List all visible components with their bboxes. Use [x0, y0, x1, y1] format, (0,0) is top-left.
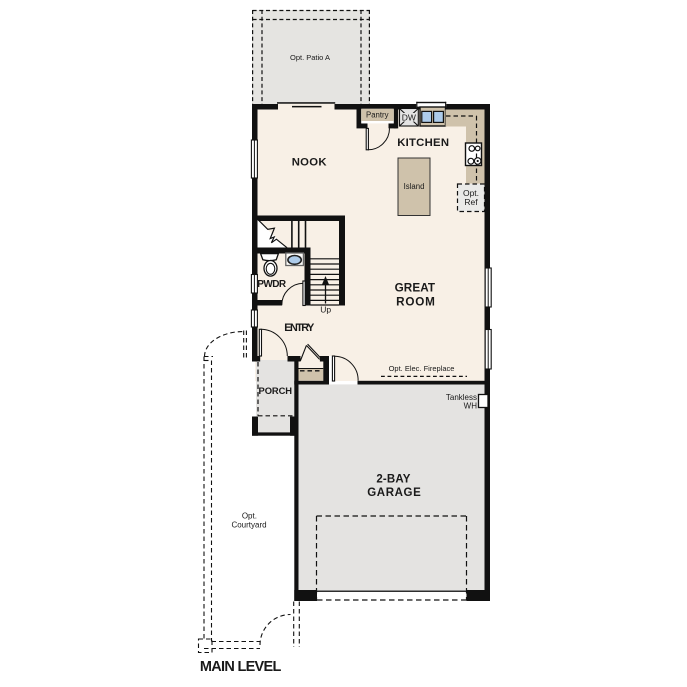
svg-text:NOOK: NOOK	[292, 157, 328, 169]
svg-text:PWDR: PWDR	[257, 279, 287, 290]
svg-text:Island: Island	[404, 182, 425, 191]
svg-text:PORCH: PORCH	[259, 385, 293, 396]
svg-text:KITCHEN: KITCHEN	[397, 137, 449, 149]
svg-text:Opt. Elec. Fireplace: Opt. Elec. Fireplace	[389, 364, 455, 373]
svg-text:Ref: Ref	[464, 197, 478, 207]
svg-text:Opt. Patio A: Opt. Patio A	[290, 53, 330, 62]
svg-text:MAIN LEVEL: MAIN LEVEL	[200, 659, 282, 675]
svg-text:Up: Up	[320, 304, 331, 314]
svg-text:DW: DW	[402, 113, 416, 123]
svg-text:GREAT: GREAT	[395, 282, 436, 295]
svg-text:Opt.: Opt.	[242, 512, 257, 521]
svg-text:GARAGE: GARAGE	[367, 487, 421, 499]
svg-text:Pantry: Pantry	[366, 111, 389, 120]
svg-text:WH: WH	[464, 402, 478, 411]
svg-text:2-BAY: 2-BAY	[376, 474, 410, 486]
svg-text:Courtyard: Courtyard	[231, 521, 266, 530]
svg-text:ENTRY: ENTRY	[284, 322, 315, 334]
svg-text:ROOM: ROOM	[396, 296, 435, 309]
